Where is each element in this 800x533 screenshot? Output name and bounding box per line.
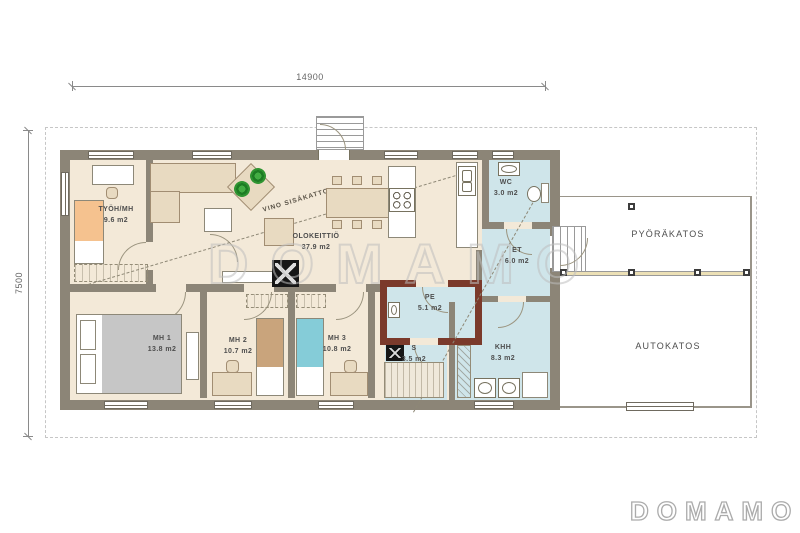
room-name: TYÖH/MH: [81, 205, 151, 216]
desk-mh2: [212, 372, 252, 396]
room-area: 9.6 m2: [81, 216, 151, 227]
wall-et-khh-b: [526, 296, 550, 302]
wc-sink-icon: [498, 162, 520, 176]
window: [104, 401, 148, 409]
dining-chair: [332, 220, 342, 229]
dining-chair: [332, 176, 342, 185]
room-label-s: S 3.5 m2: [379, 344, 449, 365]
room-area: 3.0 m2: [471, 189, 541, 200]
khh-counter: [522, 372, 548, 398]
desk-mh3: [330, 372, 368, 396]
window: [61, 172, 69, 216]
dining-table: [326, 188, 390, 218]
dimension-height-label: 7500: [14, 261, 24, 305]
room-label-mh3: MH 3 10.8 m2: [302, 334, 372, 355]
dimension-line-top: [72, 86, 545, 87]
carport-label: AUTOKATOS: [608, 340, 728, 354]
dining-chair: [352, 220, 362, 229]
sofa: [150, 163, 236, 193]
room-area: 5.1 m2: [395, 304, 465, 315]
floor-plan: 14900 7500: [0, 0, 800, 533]
carport-window: [626, 402, 694, 411]
room-area: 8.3 m2: [468, 354, 538, 365]
pillow: [80, 354, 96, 384]
room-label-pe: PE 5.1 m2: [395, 293, 465, 314]
dimension-width-label: 14900: [280, 72, 340, 82]
room-area: 10.7 m2: [203, 347, 273, 358]
carport-post: [628, 269, 635, 276]
coffee-table: [204, 208, 232, 232]
dryer-icon: [498, 378, 520, 398]
window: [384, 151, 418, 159]
room-area: 10.8 m2: [302, 345, 372, 356]
dimension-line-left: [28, 130, 29, 436]
watermark: DOMAMO: [208, 236, 601, 292]
desk: [92, 165, 134, 185]
entrance-door-gap: [318, 150, 350, 160]
chair-mh2: [226, 360, 239, 373]
carport-post: [694, 269, 701, 276]
plant-icon: [234, 181, 250, 197]
wall-khh-left: [449, 302, 455, 400]
window: [192, 151, 232, 159]
washer-icon: [474, 378, 496, 398]
wall-bedrooms-a: [70, 284, 156, 292]
desk-chair: [106, 187, 118, 199]
room-name: WC: [471, 178, 541, 189]
carport-post: [628, 203, 635, 210]
carport-top-edge: [560, 196, 750, 197]
toilet-tank: [541, 183, 549, 203]
dining-chair: [372, 220, 382, 229]
room-label-khh: KHH 8.3 m2: [468, 343, 538, 364]
bike-shelter-label: PYÖRÄKATOS: [608, 228, 728, 242]
room-area: 3.5 m2: [379, 355, 449, 366]
wall-mh2-mh3: [288, 292, 295, 398]
stove-icon: [389, 188, 415, 212]
dining-chair: [372, 176, 382, 185]
room-name: MH 1: [127, 334, 197, 345]
room-label-tyoh: TYÖH/MH 9.6 m2: [81, 205, 151, 226]
room-name: S: [379, 344, 449, 355]
window: [214, 401, 252, 409]
window: [452, 151, 478, 159]
brand-logo: DOMAMO: [630, 498, 799, 524]
room-label-mh2: MH 2 10.7 m2: [203, 336, 273, 357]
plant-icon: [250, 168, 266, 184]
room-label-wc: WC 3.0 m2: [471, 178, 541, 199]
wardrobe: [296, 294, 326, 308]
wardrobe: [246, 294, 288, 308]
window: [318, 401, 354, 409]
window: [492, 151, 514, 159]
carport-post: [743, 269, 750, 276]
room-area: 13.8 m2: [127, 345, 197, 356]
sofa-chaise: [150, 191, 180, 223]
room-name: MH 3: [302, 334, 372, 345]
wall-wc-bottom-b: [532, 222, 550, 229]
wall-wc-bottom-a: [482, 222, 504, 229]
room-name: KHH: [468, 343, 538, 354]
dining-chair: [352, 176, 362, 185]
pillow: [80, 320, 96, 350]
wall-et-khh-a: [482, 296, 498, 302]
carport-right-wall: [750, 196, 752, 408]
chair-mh3: [344, 360, 357, 373]
window: [474, 401, 514, 409]
room-label-mh1: MH 1 13.8 m2: [127, 334, 197, 355]
window: [88, 151, 134, 159]
sauna-benches: [384, 362, 444, 398]
wardrobe: [74, 264, 148, 282]
room-name: MH 2: [203, 336, 273, 347]
